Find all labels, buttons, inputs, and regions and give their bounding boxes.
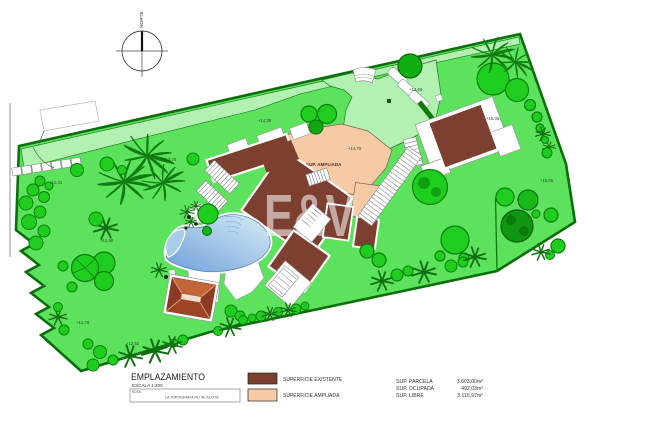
svg-text:SUPERFICIE EXISTENTE: SUPERFICIE EXISTENTE xyxy=(283,377,343,383)
svg-text:NORTE: NORTE xyxy=(139,11,145,28)
svg-text:+15,06: +15,06 xyxy=(540,178,554,183)
svg-text:SUP. OCUPADA: SUP. OCUPADA xyxy=(396,386,435,392)
svg-text:+14,70: +14,70 xyxy=(348,146,362,151)
svg-text:+12,78: +12,78 xyxy=(76,320,90,325)
svg-text:492,03m²: 492,03m² xyxy=(461,386,483,392)
svg-text:SUP. LIBRE: SUP. LIBRE xyxy=(396,393,424,399)
svg-text:SUP. AMPLIADA: SUP. AMPLIADA xyxy=(306,162,342,167)
svg-text:+15,05: +15,05 xyxy=(486,116,500,121)
svg-text:E&V: E&V xyxy=(264,183,355,249)
svg-text:NOTA:: NOTA: xyxy=(132,390,142,394)
svg-text:SUPERFICIE AMPLIADA: SUPERFICIE AMPLIADA xyxy=(283,393,340,399)
svg-text:+12,41: +12,41 xyxy=(49,180,63,185)
svg-text:+12,52: +12,52 xyxy=(126,341,140,346)
svg-text:3.116,97m²: 3.116,97m² xyxy=(457,393,483,399)
svg-text:SUP. PARCELA: SUP. PARCELA xyxy=(396,379,433,385)
svg-text:+14,39: +14,39 xyxy=(258,118,272,123)
svg-text:+13,76: +13,76 xyxy=(163,157,177,162)
svg-text:LA TOPOGRAFIA NO SE ACOTA: LA TOPOGRAFIA NO SE ACOTA xyxy=(165,396,219,400)
svg-text:ESCALA 1:200: ESCALA 1:200 xyxy=(132,383,163,388)
svg-text:EMPLAZAMIENTO: EMPLAZAMIENTO xyxy=(131,371,205,382)
svg-text:+12,88: +12,88 xyxy=(100,238,114,243)
svg-text:3.603,00m²: 3.603,00m² xyxy=(457,379,484,385)
svg-text:+14,66: +14,66 xyxy=(409,87,423,92)
